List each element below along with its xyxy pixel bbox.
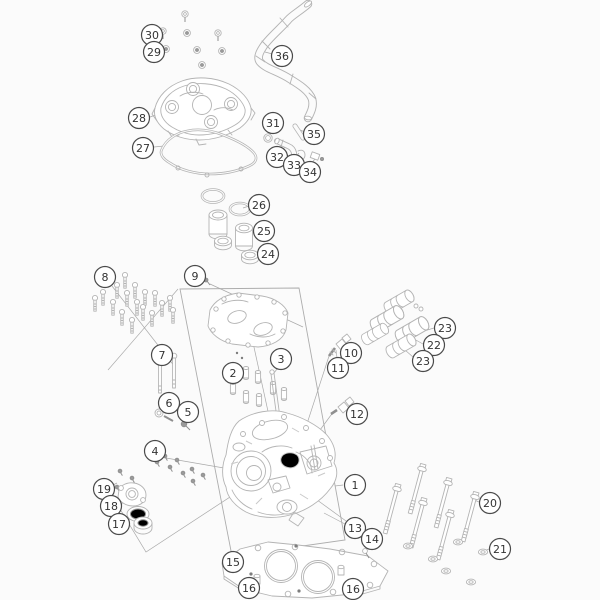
callout-3[interactable]: 3 <box>271 349 292 370</box>
callout-number: 31 <box>266 117 280 130</box>
callout-25[interactable]: 25 <box>254 221 275 242</box>
callout-number: 13 <box>348 522 362 535</box>
callout-number: 33 <box>287 159 301 172</box>
callout-number: 1 <box>352 479 359 492</box>
callout-number: 25 <box>257 225 271 238</box>
ring <box>215 236 232 250</box>
callout-number: 17 <box>112 518 126 531</box>
pointer-line <box>336 350 337 358</box>
callout-number: 28 <box>132 112 146 125</box>
callout-36[interactable]: 36 <box>272 46 293 67</box>
callout-number: 8 <box>102 271 109 284</box>
callout-number: 12 <box>350 408 364 421</box>
callout-34[interactable]: 34 <box>300 162 321 183</box>
callout-number: 24 <box>261 248 275 261</box>
grommet-icon <box>184 30 191 37</box>
callout-9[interactable]: 9 <box>185 266 206 287</box>
callout-21[interactable]: 21 <box>490 539 511 560</box>
callout-14[interactable]: 14 <box>362 529 383 550</box>
callout-number: 27 <box>136 142 150 155</box>
oring-31 <box>264 134 272 142</box>
callout-number: 2 <box>230 367 237 380</box>
callout-28[interactable]: 28 <box>129 108 150 129</box>
callout-number: 16 <box>346 583 360 596</box>
head-bolt-washers <box>403 539 487 585</box>
callout-number: 10 <box>344 347 358 360</box>
grommet-icon <box>194 47 201 54</box>
callout-20[interactable]: 20 <box>480 493 501 514</box>
callout-number: 5 <box>185 406 192 419</box>
screw-icon <box>182 11 188 22</box>
callout-number: 6 <box>166 397 173 410</box>
callout-16[interactable]: 16 <box>239 578 260 599</box>
callout-4[interactable]: 4 <box>145 441 166 462</box>
callout-number: 29 <box>147 46 161 59</box>
callout-1[interactable]: 1 <box>345 475 366 496</box>
callout-number: 30 <box>145 29 159 42</box>
callout-number: 16 <box>242 582 256 595</box>
screw-icon <box>215 30 221 41</box>
callout-number: 23 <box>416 355 430 368</box>
ring-24 <box>242 250 259 264</box>
callout-27[interactable]: 27 <box>133 138 154 159</box>
callout-number: 11 <box>331 362 345 375</box>
callout-number: 14 <box>365 533 379 546</box>
pointer-line <box>405 350 413 357</box>
cylinder-head <box>223 411 337 526</box>
callout-number: 19 <box>97 483 111 496</box>
callout-number: 35 <box>307 128 321 141</box>
callout-number: 4 <box>152 445 159 458</box>
callout-2[interactable]: 2 <box>223 363 244 384</box>
pointer-line <box>335 485 343 486</box>
callout-8[interactable]: 8 <box>95 267 116 288</box>
callout-number: 26 <box>252 199 266 212</box>
thermostat-17 <box>127 507 152 535</box>
cam-followers <box>360 288 431 359</box>
diagram-canvas: 3029362827313532333426252489232223731011… <box>0 0 600 600</box>
callout-number: 7 <box>159 349 166 362</box>
screw-icon <box>118 469 122 476</box>
plug-34 <box>310 152 323 161</box>
callout-number: 23 <box>438 322 452 335</box>
callout-6[interactable]: 6 <box>159 393 180 414</box>
callout-number: 32 <box>270 151 284 164</box>
callout-number: 9 <box>192 270 199 283</box>
callout-number: 34 <box>303 166 317 179</box>
cover-screws-and-grommets <box>160 11 226 69</box>
callout-31[interactable]: 31 <box>263 113 284 134</box>
callout-number: 36 <box>275 50 289 63</box>
grommet-icon <box>199 62 206 69</box>
sleeve-25 <box>236 223 253 251</box>
callout-24[interactable]: 24 <box>258 244 279 265</box>
callout-7[interactable]: 7 <box>152 345 173 366</box>
callout-number: 21 <box>493 543 507 556</box>
callout-29[interactable]: 29 <box>144 42 165 63</box>
valve-cover <box>152 78 255 145</box>
callout-35[interactable]: 35 <box>304 124 325 145</box>
callout-12[interactable]: 12 <box>347 404 368 425</box>
head-bolts <box>381 463 481 561</box>
callout-15[interactable]: 15 <box>223 552 244 573</box>
screw-icon <box>130 476 134 483</box>
callout-26[interactable]: 26 <box>249 195 270 216</box>
camshaft-bridge <box>204 278 288 359</box>
callout-number: 22 <box>427 339 441 352</box>
callout-number: 20 <box>483 497 497 510</box>
grommet-icon <box>219 48 226 55</box>
sleeve <box>209 210 227 239</box>
callout-number: 15 <box>226 556 240 569</box>
callout-17[interactable]: 17 <box>109 514 130 535</box>
callout-11[interactable]: 11 <box>328 358 349 379</box>
callout-23[interactable]: 23 <box>413 351 434 372</box>
callout-16[interactable]: 16 <box>343 579 364 600</box>
parts-diagram: 3029362827313532333426252489232223731011… <box>0 0 600 600</box>
callout-5[interactable]: 5 <box>178 402 199 423</box>
dowel-16-right <box>338 565 344 575</box>
callout-number: 18 <box>104 500 118 513</box>
callout-number: 3 <box>278 353 285 366</box>
